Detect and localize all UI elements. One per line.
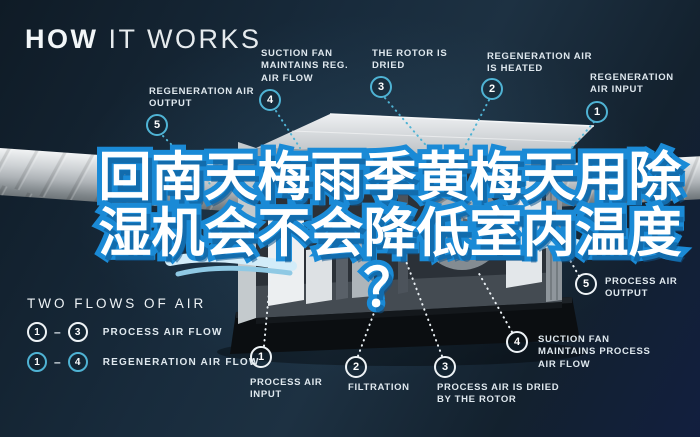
headline-line2: 湿机会不会降低室内温度 <box>70 206 700 262</box>
badge-regen-1: 1 <box>586 101 608 123</box>
legend-process-label: PROCESS AIR FLOW <box>103 327 223 338</box>
legend-regen-from: 1 <box>27 352 47 372</box>
headline-line1: 回南天梅雨季黄梅天用除 <box>70 150 700 206</box>
legend-dash: – <box>54 355 61 369</box>
label-filtration: FILTRATION <box>348 382 438 394</box>
label-suction-fan-process: SUCTION FAN MAINTAINS PROCESS AIR FLOW <box>538 334 660 371</box>
label-regeneration-air-output: REGENERATION AIR OUTPUT <box>149 86 255 111</box>
legend-row-regeneration: 1 – 4 REGENERATION AIR FLOW <box>27 352 260 372</box>
legend-process-to: 3 <box>68 322 88 342</box>
badge-regen-4: 4 <box>259 89 281 111</box>
label-suction-fan-reg: SUCTION FAN MAINTAINS REG. AIR FLOW <box>261 48 353 85</box>
infographic-canvas: HOW IT WORKS REGENERATION AIR OUTPUT 5 S… <box>0 0 700 437</box>
page-title: HOW IT WORKS <box>25 24 262 55</box>
legend-process-from: 1 <box>27 322 47 342</box>
badge-process-3: 3 <box>434 356 456 378</box>
label-rotor-dried: THE ROTOR IS DRIED <box>372 48 452 73</box>
badge-process-2: 2 <box>345 356 367 378</box>
title-bold: HOW <box>25 24 98 54</box>
badge-regen-5: 5 <box>146 114 168 136</box>
legend-regen-to: 4 <box>68 352 88 372</box>
legend-regen-label: REGENERATION AIR FLOW <box>103 357 260 368</box>
legend-dash: – <box>54 325 61 339</box>
badge-regen-2: 2 <box>481 78 503 100</box>
title-light: IT WORKS <box>109 24 262 54</box>
legend-row-process: 1 – 3 PROCESS AIR FLOW <box>27 322 223 342</box>
label-process-air-input: PROCESS AIR INPUT <box>250 377 340 402</box>
label-regen-air-input: REGENERATION AIR INPUT <box>590 72 686 97</box>
headline-overlay: 回南天梅雨季黄梅天用除 湿机会不会降低室内温度 ？ <box>70 150 700 317</box>
label-regen-air-heated: REGENERATION AIR IS HEATED <box>487 51 603 76</box>
label-process-dried-by-rotor: PROCESS AIR IS DRIED BY THE ROTOR <box>437 382 573 407</box>
headline-line3: ？ <box>70 261 700 317</box>
badge-regen-3: 3 <box>370 76 392 98</box>
badge-process-4: 4 <box>506 331 528 353</box>
